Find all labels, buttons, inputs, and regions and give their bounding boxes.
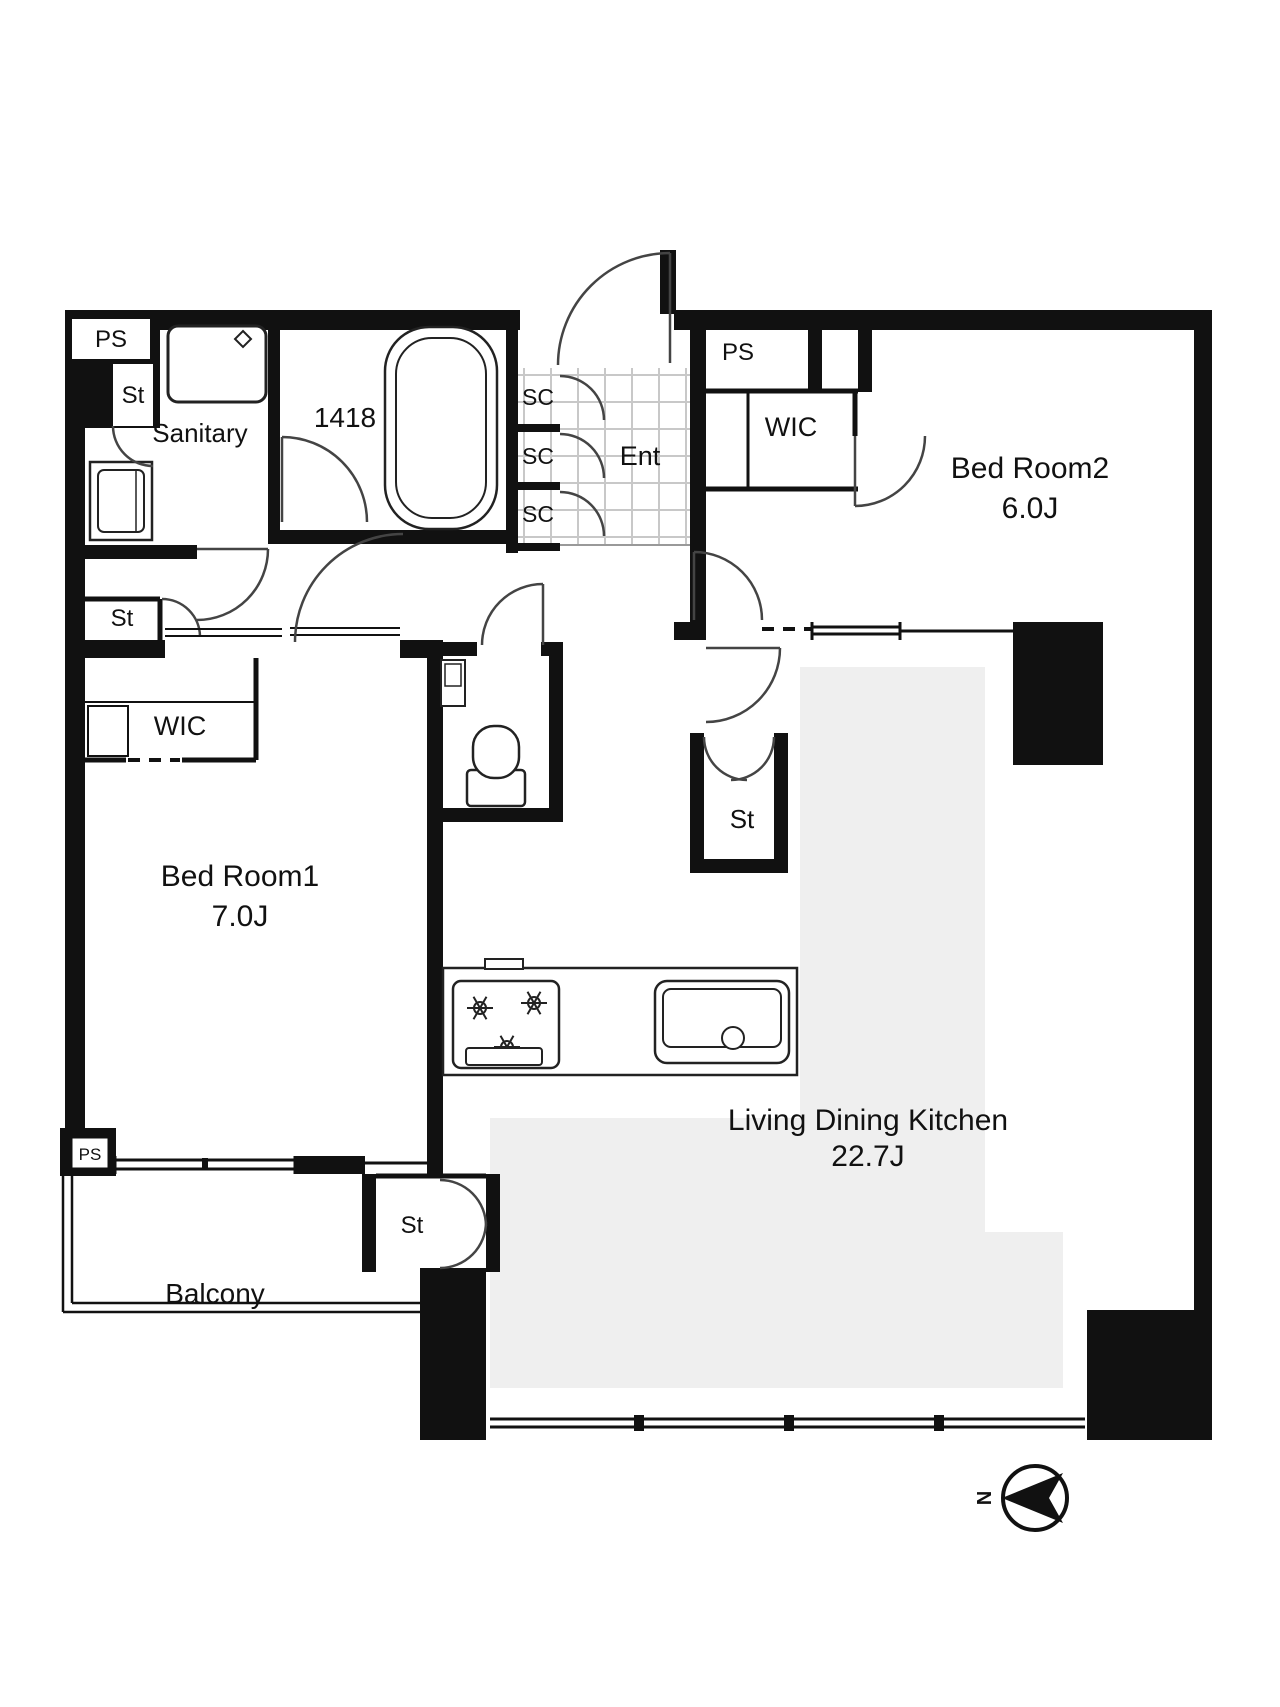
wall-bath-bottom [268,530,518,544]
washbasin-bowl [98,470,144,532]
st-label-mid: St [730,804,755,834]
wall-sanitary-bath [268,323,280,544]
window-sep-3 [934,1415,944,1431]
bathtub-inner [396,338,486,518]
sink-drain-icon [722,1027,744,1049]
hall-ldk-door [706,648,780,722]
pillar-mid-right [1013,622,1103,765]
wall-entry-jamb [660,250,676,314]
wic-left-walls [85,658,256,760]
wic-label-left: WIC [154,711,206,741]
st-label-left: St [111,605,134,632]
wall-b1-bottom-seg [295,1156,365,1174]
balcony-label: Balcony [165,1278,265,1309]
wall-st-balcony-right [486,1174,500,1272]
bath-door [282,437,367,522]
wall-wic-tr-stub-b [858,313,872,392]
floor-plan-page: PS St Sanitary 1418 SC SC SC Ent PS WIC … [0,0,1280,1707]
wic-right-door [855,436,925,506]
wall-hall-bottom-a [85,640,165,658]
floor-plan: PS St Sanitary 1418 SC SC SC Ent PS WIC … [0,0,1280,1707]
wall-st-mid-bottom [690,859,788,873]
toilet-door [482,584,543,645]
bedroom2-name: Bed Room2 [951,452,1109,485]
sc-door-3 [560,492,604,536]
wall-long-center [427,642,443,1174]
wall-sc-sep2 [506,482,560,490]
wall-bath-sc [506,313,518,553]
ldk-area: 22.7J [831,1140,904,1173]
wall-wic-tr-stub-a [808,318,822,392]
toilet [441,660,525,806]
wall-st-balcony-left [362,1174,376,1272]
wall-toilet-bottom [443,808,563,822]
compass: N [972,1466,1067,1530]
wall-st-mid-left [690,733,704,873]
bedroom1-door [295,534,403,642]
pillar-bottom-right [1087,1310,1194,1440]
bedroom2-area: 6.0J [1002,492,1059,525]
ps-label-bottom-left: PS [79,1145,102,1164]
wall-divider-ent [690,330,706,640]
toilet-bowl [473,726,519,778]
entrance-door [558,253,670,365]
bedroom1-area: 7.0J [212,900,269,933]
window-bedroom2 [812,622,900,640]
st-label-balcony: St [401,1212,424,1239]
wic-label-right: WIC [765,412,817,442]
entrance-label: Ent [620,441,661,471]
bedroom1-name: Bed Room1 [161,860,319,893]
bath-size-label: 1418 [314,402,376,433]
st-left-door [162,599,200,637]
ps-label-top-right: PS [722,339,754,366]
sanitary-door [197,549,268,620]
compass-north-label: N [972,1491,994,1505]
window-sep-2 [784,1415,794,1431]
toilet-corner-sink-bowl [445,664,461,686]
washer-pan [168,326,266,402]
ldk-name: Living Dining Kitchen [728,1104,1008,1137]
wall-toilet-right [549,642,563,822]
bathtub [385,327,497,529]
kitchen-counter [443,959,797,1075]
window-tick-b1 [202,1158,208,1170]
st-top-left-door [113,426,153,466]
wall-sanitary-bottom [85,545,197,559]
sc-label-3: SC [522,501,554,527]
wall-sc-sep1 [506,424,560,432]
pillar-bottom-left [420,1268,486,1440]
wall-outer-right [1194,330,1212,1440]
window-sep-1 [634,1415,644,1431]
sanitary-label: Sanitary [152,418,247,448]
stove-grill [466,1048,542,1065]
wall-sc-bottom [506,543,560,551]
washer-pan-outline [168,326,266,402]
st-label-top-left: St [122,382,145,409]
kitchen-hood [485,959,523,969]
wall-toilet-top-a [443,642,477,656]
wall-st-mid-right [774,733,788,873]
wall-b1-corner [427,1156,443,1174]
st-balcony-folding-door [440,1180,486,1268]
ps-label-top-left: PS [95,326,127,353]
wall-top-right [674,310,1212,330]
sc-label-1: SC [522,384,554,410]
sc-label-2: SC [522,443,554,469]
wall-b2-bottom-stub [674,622,690,640]
wic-left-shelf [88,706,128,756]
sc-door-1 [560,376,604,420]
wall-outer-left [65,310,85,1156]
st-mid-folding-door [704,737,774,780]
washbasin [90,462,152,540]
